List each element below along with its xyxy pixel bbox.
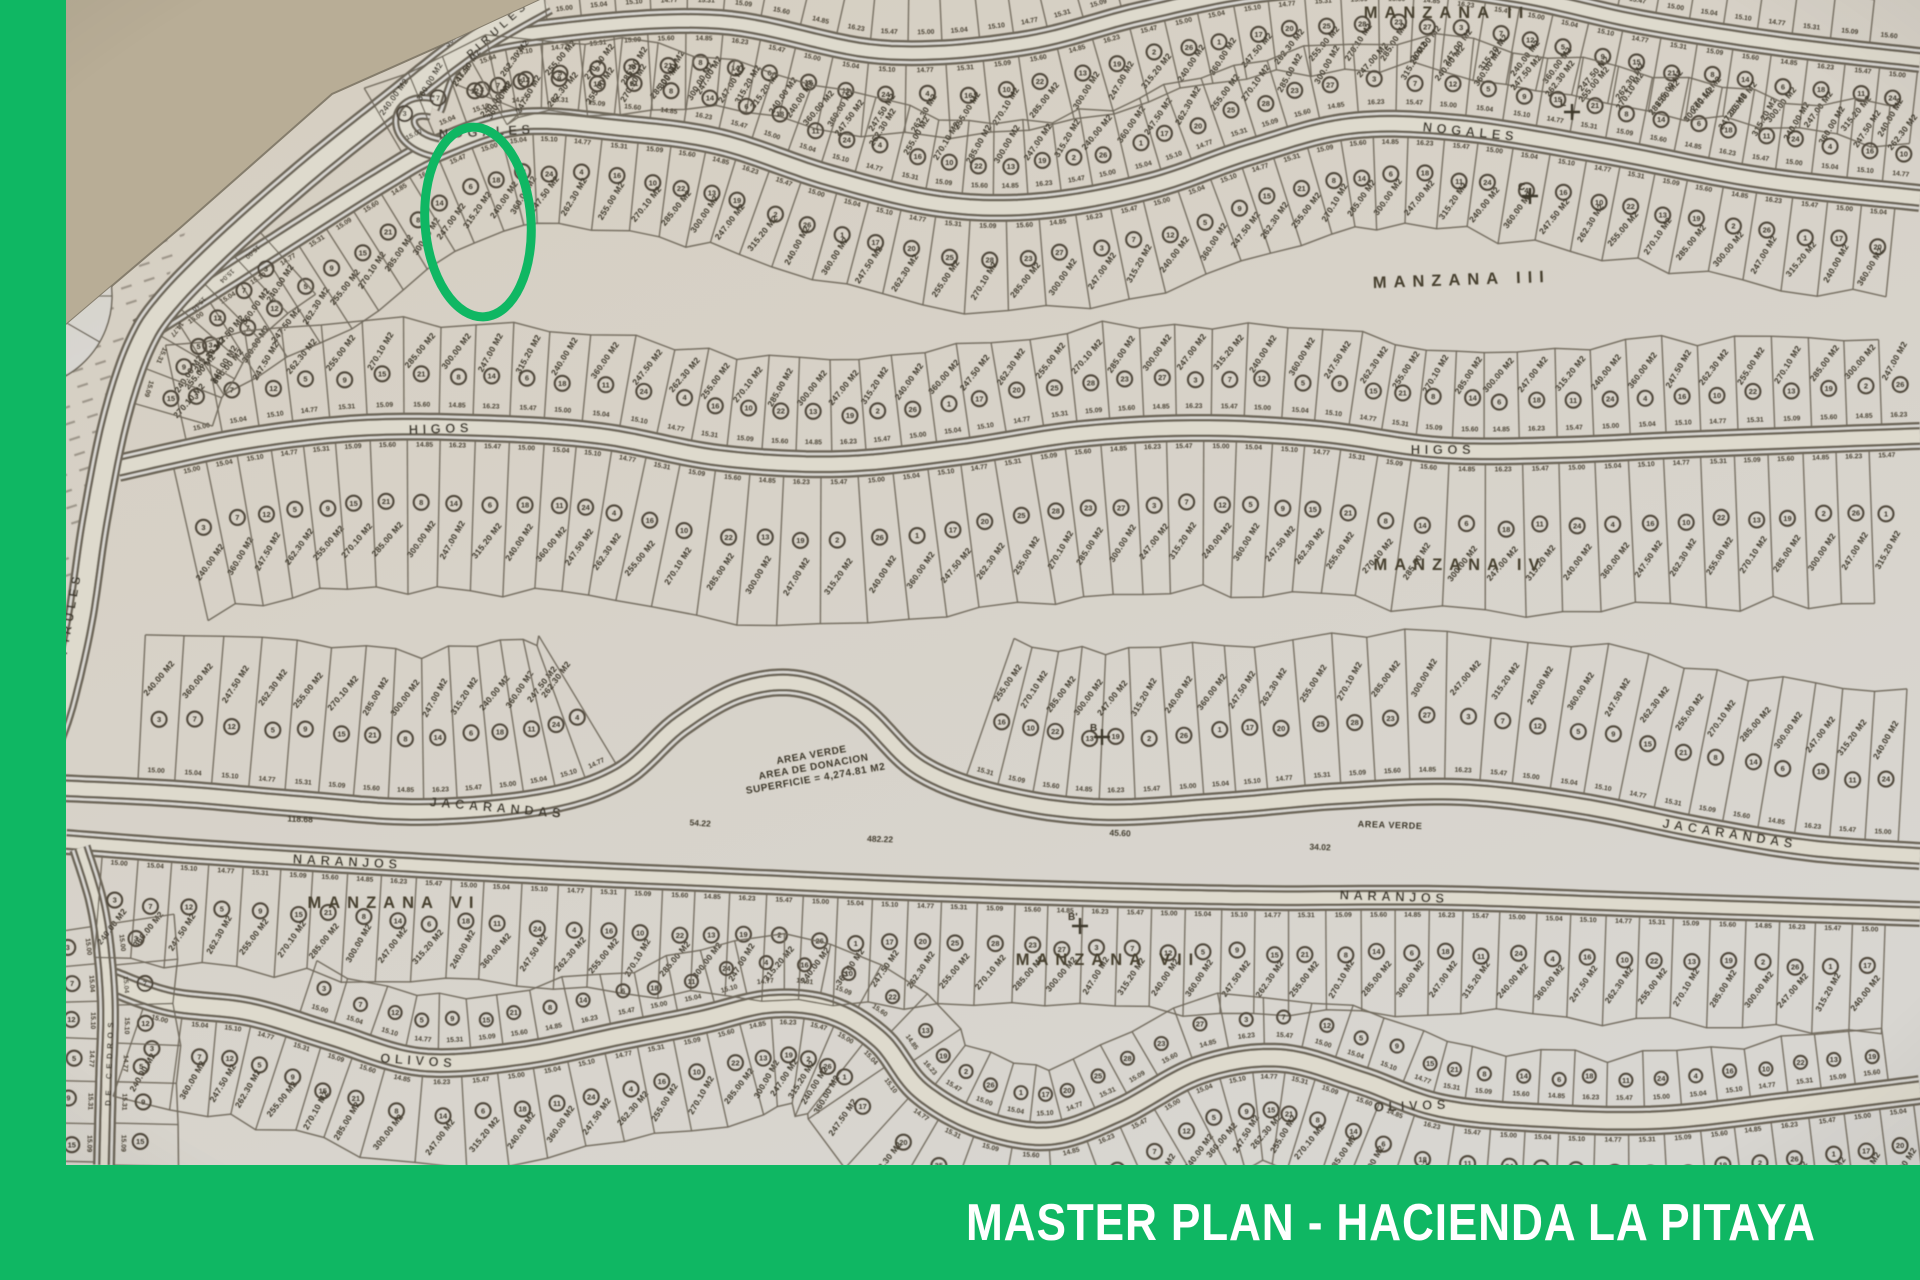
master-plan-map: 15.003240.00 M215.047360.00 M215.1012247… (0, 0, 1920, 1280)
bottom-banner: MASTER PLAN - HACIENDA LA PITAYA (0, 1165, 1920, 1280)
banner-title: MASTER PLAN - HACIENDA LA PITAYA (966, 1165, 1816, 1280)
master-plan-slide: 15.003240.00 M215.047360.00 M215.1012247… (0, 0, 1920, 1280)
green-frame-left-bar (0, 0, 66, 1280)
photo-vignette (0, 0, 1920, 1280)
